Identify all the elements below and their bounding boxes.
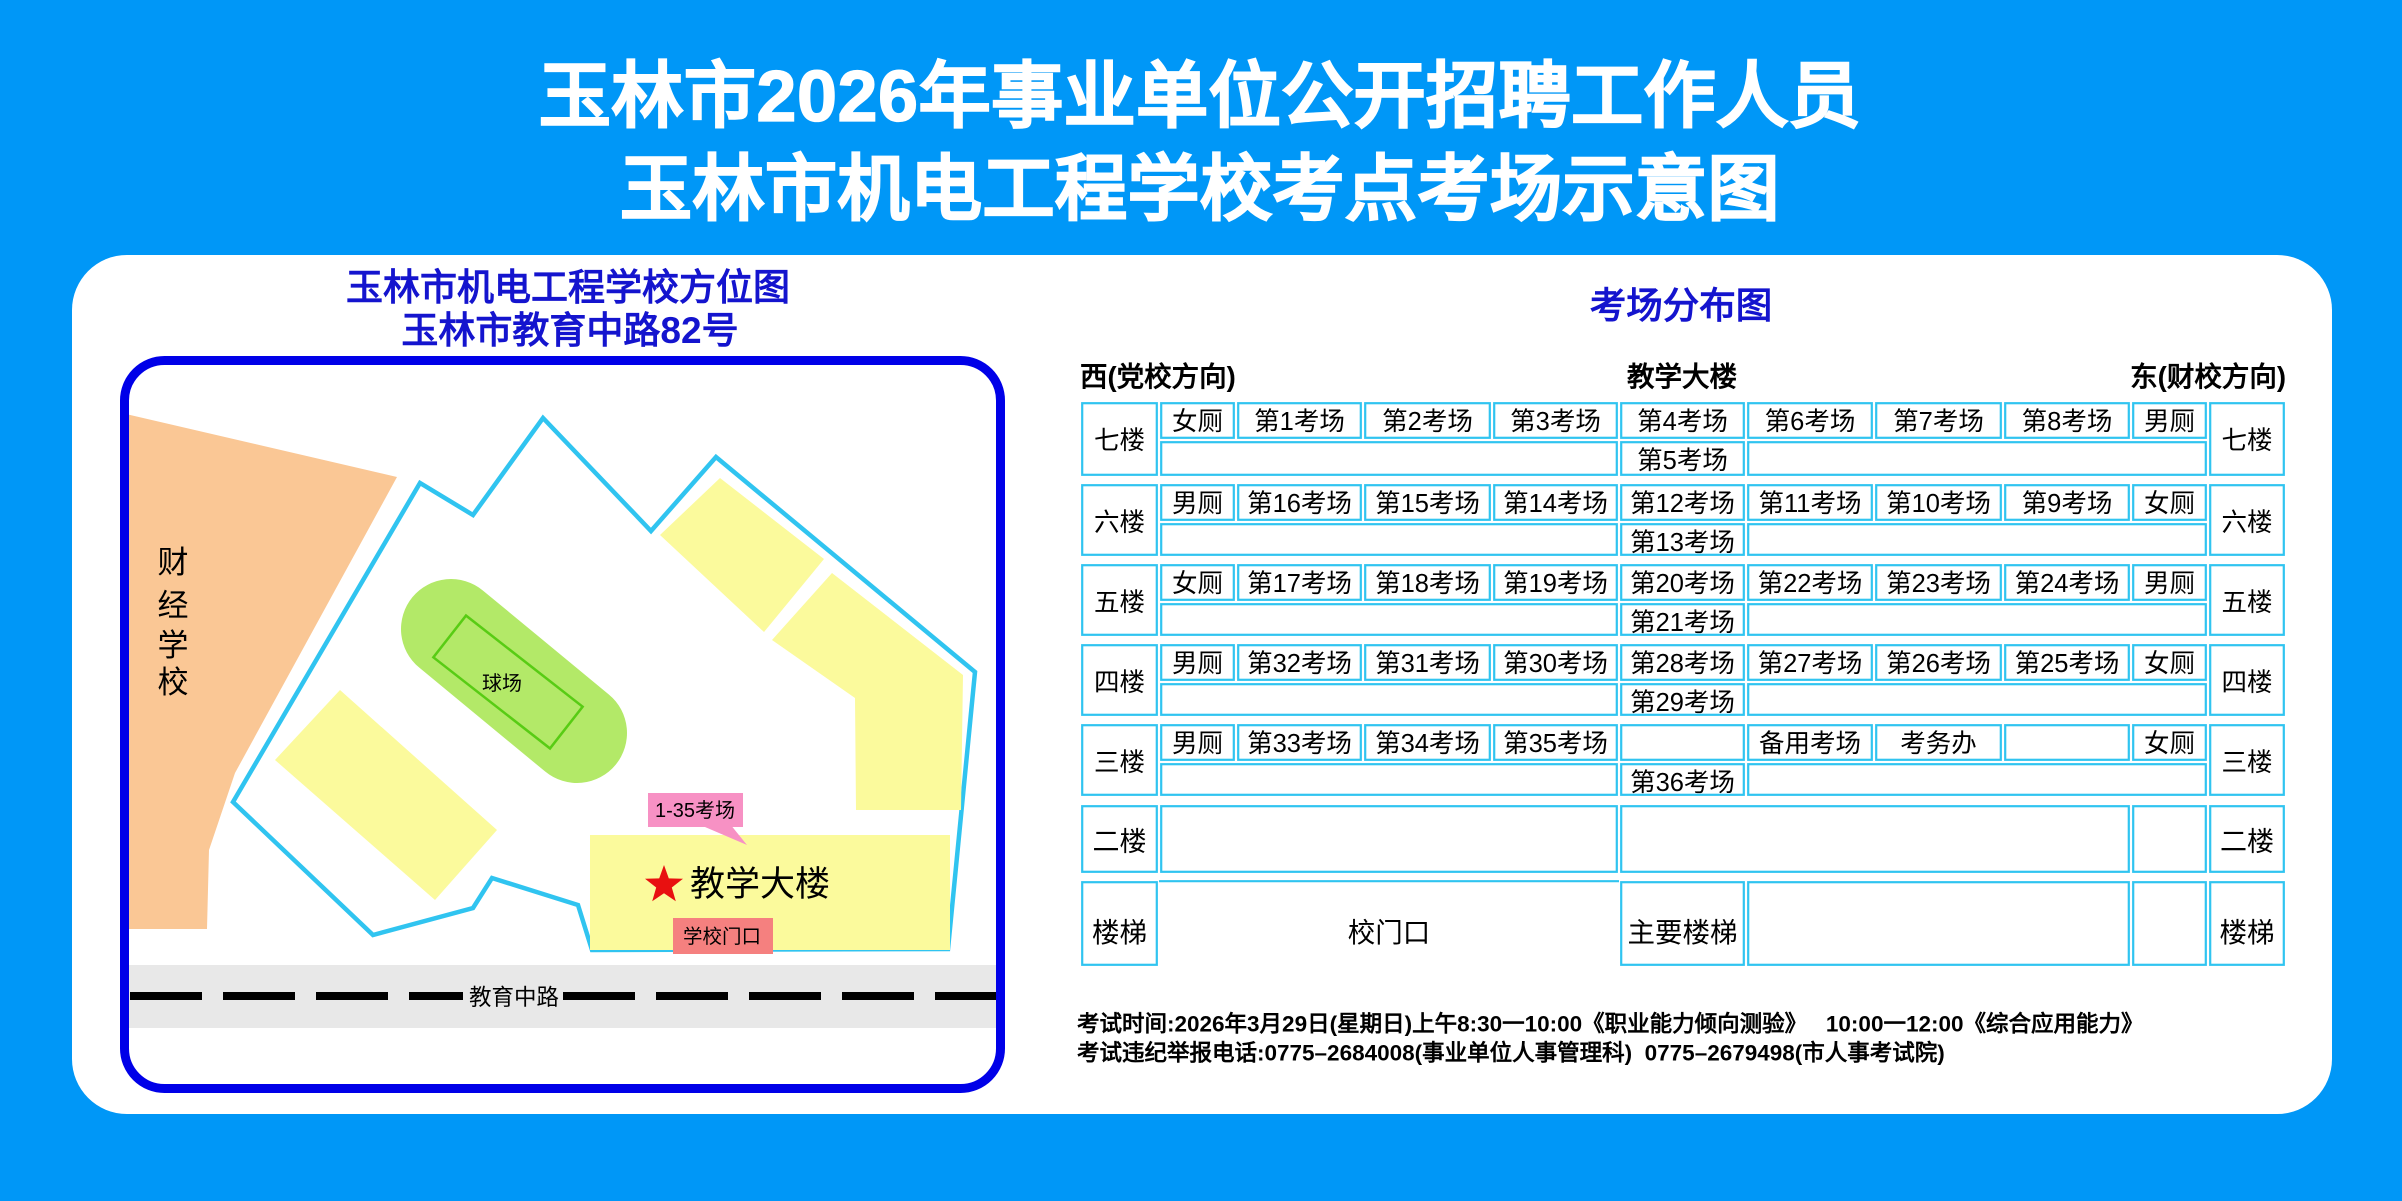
svg-text:第30考场: 第30考场 [1503, 650, 1608, 678]
svg-text:第13考场: 第13考场 [1630, 529, 1735, 557]
svg-text:男厕: 男厕 [1172, 650, 1223, 678]
svg-text:备用考场: 备用考场 [1759, 730, 1861, 758]
svg-text:第36考场: 第36考场 [1630, 769, 1735, 797]
svg-text:球场: 球场 [482, 672, 522, 695]
svg-text:第1考场: 第1考场 [1254, 408, 1345, 436]
svg-text:玉林市机电工程学校考点考场示意图: 玉林市机电工程学校考点考场示意图 [620, 150, 1780, 230]
svg-text:第17考场: 第17考场 [1247, 570, 1352, 598]
svg-text:教学大楼: 教学大楼 [1627, 361, 1737, 392]
svg-text:教学大楼: 教学大楼 [690, 865, 830, 904]
svg-text:第31考场: 第31考场 [1375, 650, 1480, 678]
svg-text:西(党校方向): 西(党校方向) [1080, 361, 1236, 392]
svg-text:第33考场: 第33考场 [1247, 730, 1352, 758]
svg-text:第14考场: 第14考场 [1503, 490, 1608, 518]
svg-text:第21考场: 第21考场 [1630, 609, 1735, 637]
svg-text:主要楼梯: 主要楼梯 [1628, 917, 1738, 948]
svg-text:校: 校 [158, 665, 189, 700]
svg-text:四楼: 四楼 [1094, 669, 1145, 697]
svg-text:第11考场: 第11考场 [1759, 490, 1862, 518]
svg-text:第7考场: 第7考场 [1893, 408, 1984, 436]
svg-text:三楼: 三楼 [2221, 749, 2272, 777]
svg-text:女厕: 女厕 [2144, 490, 2195, 518]
svg-text:东(财校方向): 东(财校方向) [2130, 361, 2286, 392]
svg-text:第4考场: 第4考场 [1637, 408, 1728, 436]
svg-text:楼梯: 楼梯 [1092, 917, 1147, 948]
svg-text:男厕: 男厕 [2144, 570, 2195, 598]
svg-text:第34考场: 第34考场 [1375, 730, 1480, 758]
svg-text:七楼: 七楼 [2221, 427, 2272, 455]
svg-text:四楼: 四楼 [2221, 669, 2272, 697]
svg-text:六楼: 六楼 [2221, 509, 2272, 537]
svg-text:六楼: 六楼 [1094, 509, 1145, 537]
svg-text:玉林市2026年事业单位公开招聘工作人员: 玉林市2026年事业单位公开招聘工作人员 [539, 57, 1861, 137]
svg-text:考务办: 考务办 [1900, 730, 1977, 758]
svg-text:第18考场: 第18考场 [1375, 570, 1480, 598]
svg-text:校门口: 校门口 [1348, 917, 1431, 948]
svg-text:学校门口: 学校门口 [683, 926, 761, 948]
svg-text:第16考场: 第16考场 [1247, 490, 1352, 518]
svg-text:第8考场: 第8考场 [2022, 408, 2113, 436]
svg-text:第2考场: 第2考场 [1382, 408, 1473, 436]
svg-text:学: 学 [158, 628, 189, 663]
svg-text:男厕: 男厕 [1172, 730, 1223, 758]
svg-text:女厕: 女厕 [1172, 408, 1223, 436]
svg-text:第22考场: 第22考场 [1758, 570, 1863, 598]
svg-text:教育中路: 教育中路 [469, 985, 559, 1010]
svg-text:第12考场: 第12考场 [1630, 490, 1735, 518]
svg-text:第19考场: 第19考场 [1503, 570, 1608, 598]
svg-text:女厕: 女厕 [1172, 570, 1223, 598]
svg-text:财: 财 [158, 545, 189, 580]
svg-text:第9考场: 第9考场 [2022, 490, 2113, 518]
svg-text:第15考场: 第15考场 [1375, 490, 1480, 518]
svg-text:三楼: 三楼 [1094, 749, 1145, 777]
svg-text:女厕: 女厕 [2144, 730, 2195, 758]
svg-text:二楼: 二楼 [1093, 827, 1147, 857]
svg-text:第10考场: 第10考场 [1886, 490, 1991, 518]
svg-text:第5考场: 第5考场 [1637, 447, 1728, 475]
svg-text:第28考场: 第28考场 [1630, 650, 1735, 678]
svg-text:第32考场: 第32考场 [1247, 650, 1352, 678]
svg-text:第29考场: 第29考场 [1630, 689, 1735, 717]
svg-text:第27考场: 第27考场 [1758, 650, 1863, 678]
svg-text:第3考场: 第3考场 [1510, 408, 1601, 436]
svg-text:1-35考场: 1-35考场 [655, 799, 735, 822]
svg-text:五楼: 五楼 [1094, 589, 1145, 617]
svg-text:第24考场: 第24考场 [2015, 570, 2120, 598]
svg-text:二楼: 二楼 [2220, 827, 2274, 857]
svg-text:第35考场: 第35考场 [1503, 730, 1608, 758]
svg-text:考试违纪举报电话:0775–2684008(事业单位人事管理: 考试违纪举报电话:0775–2684008(事业单位人事管理科) 0775–26… [1077, 1040, 1945, 1066]
svg-text:第25考场: 第25考场 [2015, 650, 2120, 678]
svg-text:第23考场: 第23考场 [1886, 570, 1991, 598]
svg-text:五楼: 五楼 [2221, 589, 2272, 617]
svg-text:男厕: 男厕 [2144, 408, 2195, 436]
svg-text:第26考场: 第26考场 [1886, 650, 1991, 678]
svg-text:第6考场: 第6考场 [1765, 408, 1856, 436]
svg-text:女厕: 女厕 [2144, 650, 2195, 678]
svg-text:经: 经 [158, 588, 189, 623]
svg-text:男厕: 男厕 [1172, 490, 1223, 518]
svg-text:玉林市教育中路82号: 玉林市教育中路82号 [401, 309, 738, 351]
svg-text:考场分布图: 考场分布图 [1590, 285, 1773, 326]
svg-text:考试时间:2026年3月29日(星期日)上午8:30一10:: 考试时间:2026年3月29日(星期日)上午8:30一10:00《职业能力倾向测… [1077, 1011, 2144, 1037]
svg-text:玉林市机电工程学校方位图: 玉林市机电工程学校方位图 [346, 266, 790, 308]
svg-text:七楼: 七楼 [1094, 427, 1145, 455]
svg-text:楼梯: 楼梯 [2220, 917, 2275, 948]
svg-text:第20考场: 第20考场 [1630, 570, 1735, 598]
